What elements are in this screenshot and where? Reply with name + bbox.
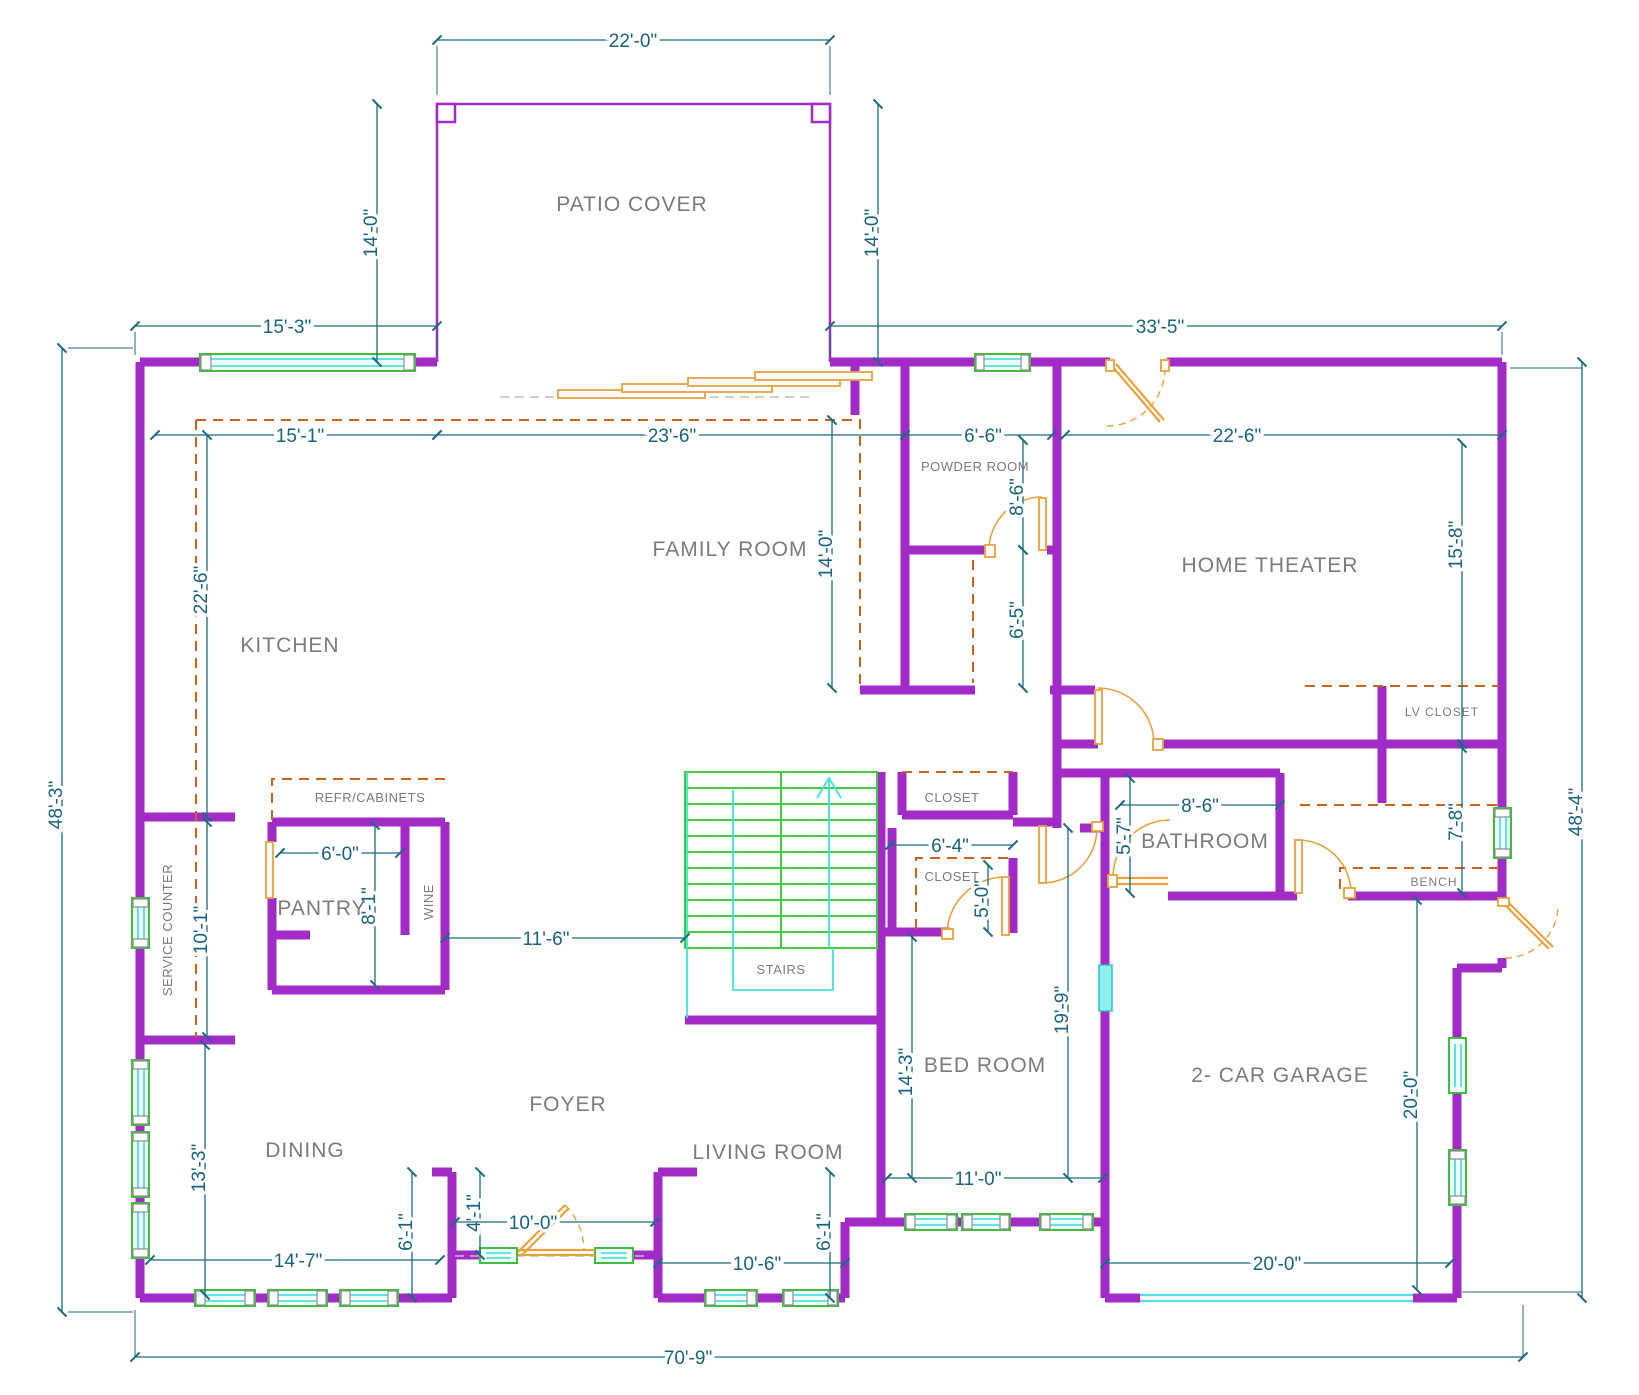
dim-15-1: 15'-1"	[276, 426, 324, 447]
dim-8-6-bath: 8'-6"	[1181, 796, 1219, 817]
dim-33-5: 33'-5"	[1136, 317, 1184, 338]
window-garage-right-1	[1449, 1038, 1466, 1093]
door-home-theater-entry	[1106, 360, 1169, 426]
dim-22-0: 22'-0"	[609, 31, 657, 52]
label-bed-room: BED ROOM	[924, 1054, 1046, 1077]
label-garage: 2- CAR GARAGE	[1191, 1064, 1369, 1087]
dim-23-6: 23'-6"	[648, 426, 696, 447]
door-bedroom-hall	[1039, 822, 1103, 883]
dim-48-4: 48'-4"	[1566, 788, 1587, 836]
dim-13-3: 13'-3"	[189, 1144, 210, 1192]
dim-6-6: 6'-6"	[964, 426, 1002, 447]
garage-door	[1140, 1295, 1413, 1301]
dim-8-6-powder: 8'-6"	[1007, 478, 1028, 516]
patio-walls	[437, 104, 830, 362]
dim-14-0-patio-left: 14'-0"	[361, 209, 382, 257]
stair-center-lines	[687, 772, 829, 1018]
dim-11-0: 11'-0"	[955, 1169, 1002, 1190]
window-dining-bottom-1	[195, 1290, 255, 1306]
patio-post-right	[812, 104, 830, 122]
label-patio-cover: PATIO COVER	[556, 193, 707, 216]
floor-plan-page: 22'-0" 14'-0" 14'-0" 15'-3" 33'-5" 48'-3…	[0, 0, 1639, 1395]
label-lv-closet: LV CLOSET	[1405, 705, 1479, 719]
label-kitchen: KITCHEN	[240, 634, 339, 657]
window-entry-sidelite-left	[480, 1248, 517, 1263]
dim-48-3: 48'-3"	[46, 781, 67, 829]
dim-11-6: 11'-6"	[523, 929, 570, 950]
dim-6-4: 6'-4"	[931, 836, 969, 857]
walls	[140, 104, 1502, 1298]
pocket-door-garage-wall	[1099, 965, 1112, 1011]
window-dining-bottom-2	[268, 1290, 327, 1306]
dim-14-0-patio-right: 14'-0"	[862, 209, 883, 257]
label-bench: BENCH	[1410, 875, 1457, 889]
dim-20-0-garage-door: 20'-0"	[1253, 1254, 1301, 1275]
door-home-theater	[1095, 688, 1163, 750]
label-wine: WINE	[421, 884, 436, 920]
door-exterior-right	[1498, 898, 1558, 958]
stairs	[685, 772, 877, 1018]
window-bedroom-2	[962, 1214, 1010, 1230]
stair-up-arrow-icon	[817, 778, 841, 812]
dim-10-0: 10'-0"	[509, 1213, 557, 1234]
label-closet-lower: CLOSET	[924, 869, 979, 884]
dim-70-9: 70'-9"	[664, 1348, 712, 1369]
label-closet-upper: CLOSET	[924, 790, 979, 805]
dim-14-3: 14'-3"	[896, 1048, 917, 1096]
window-bedroom-1	[905, 1214, 957, 1230]
label-dining: DINING	[265, 1139, 345, 1162]
dim-15-8: 15'-8"	[1446, 521, 1467, 569]
window-hall-top	[975, 354, 1030, 371]
dim-22-6-kitchen: 22'-6"	[191, 566, 212, 614]
label-home-theater: HOME THEATER	[1182, 554, 1359, 577]
floor-plan-drawing: 22'-0" 14'-0" 14'-0" 15'-3" 33'-5" 48'-3…	[0, 0, 1639, 1395]
dim-20-0-garage-v: 20'-0"	[1401, 1071, 1422, 1119]
label-living-room: LIVING ROOM	[692, 1141, 843, 1164]
window-entry-sidelite-right	[595, 1248, 633, 1263]
dim-6-0: 6'-0"	[321, 844, 359, 865]
window-dining-left-1	[132, 1060, 149, 1125]
door-patio-multislide	[558, 372, 872, 398]
window-dining-bottom-3	[340, 1290, 398, 1306]
label-stairs: STAIRS	[757, 962, 806, 977]
label-bathroom: BATHROOM	[1141, 830, 1269, 853]
patio-post-left	[437, 104, 455, 122]
window-service-counter	[132, 898, 149, 948]
dimensions: 22'-0" 14'-0" 14'-0" 15'-3" 33'-5" 48'-3…	[46, 31, 1587, 1369]
label-service-counter: SERVICE COUNTER	[160, 864, 175, 996]
label-family-room: FAMILY ROOM	[653, 538, 808, 561]
dim-22-6-theater: 22'-6"	[1213, 426, 1261, 447]
window-dining-left-2	[132, 1132, 149, 1197]
door-mudroom-garage	[1295, 840, 1355, 898]
window-bench-right	[1494, 808, 1511, 858]
dim-5-0: 5'-0"	[972, 880, 993, 918]
window-living-bottom-1	[705, 1290, 757, 1306]
dim-7-8: 7'-8"	[1446, 803, 1467, 841]
dim-10-6: 10'-6"	[733, 1254, 781, 1275]
window-bedroom-3	[1040, 1214, 1093, 1230]
dim-6-1-right: 6'-1"	[814, 1213, 835, 1251]
label-foyer: FOYER	[529, 1093, 606, 1116]
dim-10-1: 10'-1"	[191, 906, 212, 954]
dim-5-7: 5'-7"	[1114, 817, 1135, 855]
window-kitchen-top	[200, 354, 415, 371]
dim-6-5: 6'-5"	[1007, 601, 1028, 639]
label-refr-cabinets: REFR/CABINETS	[315, 790, 426, 805]
dim-6-1-left: 6'-1"	[396, 1213, 417, 1251]
dim-15-3: 15'-3"	[263, 317, 311, 338]
label-powder-room: POWDER ROOM	[921, 459, 1029, 474]
door-pantry-leaf	[266, 842, 273, 898]
window-garage-right-2	[1449, 1150, 1466, 1205]
window-dining-left-3	[132, 1203, 149, 1258]
dim-4-1: 4'-1"	[464, 1194, 485, 1232]
dim-19-9: 19'-9"	[1052, 986, 1073, 1034]
dim-14-7: 14'-7"	[274, 1251, 322, 1272]
label-pantry: PANTRY	[277, 897, 366, 920]
dim-14-0-family: 14'-0"	[816, 530, 837, 578]
